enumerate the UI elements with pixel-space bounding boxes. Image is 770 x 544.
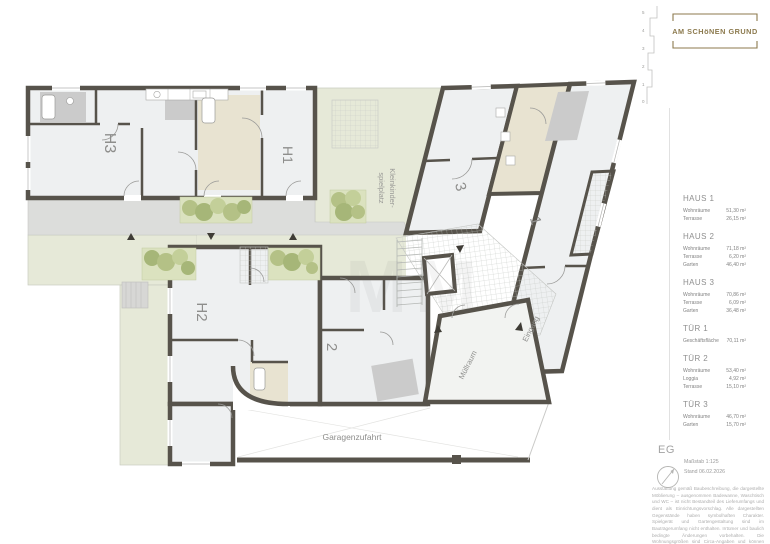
plant-patch: [142, 248, 196, 280]
date-note: Stand 06.02.2026: [684, 469, 725, 475]
legend-row-label: Terrasse: [683, 299, 702, 307]
legend-row: Geschäftsfläche70,11 m²: [683, 337, 746, 345]
legend-row-value: 53,40 m²: [726, 367, 746, 375]
building-left-top: [28, 88, 315, 198]
label-playground-line2: spielplatz: [377, 172, 386, 204]
legend-row-label: Wohnräume: [683, 291, 710, 299]
legend-row-label: Terrasse: [683, 215, 702, 223]
legend: HAUS 1Wohnräume51,30 m²Terrasse26,15 m²H…: [683, 194, 746, 438]
svg-text:0: 0: [642, 99, 645, 104]
legend-row-value: 36,48 m²: [726, 307, 746, 315]
legend-row: Garten15,70 m²: [683, 421, 746, 429]
svg-text:2: 2: [642, 64, 645, 69]
legend-row-label: Wohnräume: [683, 367, 710, 375]
svg-text:4: 4: [642, 28, 645, 33]
legend-block: HAUS 1Wohnräume51,30 m²Terrasse26,15 m²: [683, 194, 746, 223]
north-indicator-icon: [658, 467, 679, 488]
legend-row: Garten36,48 m²: [683, 307, 746, 315]
legend-row: Loggia4,92 m²: [683, 375, 746, 383]
legend-row: Terrasse26,15 m²: [683, 215, 746, 223]
label-garage: Garagenzufahrt: [322, 432, 382, 442]
legend-row-label: Terrasse: [683, 253, 702, 261]
legend-row: Wohnräume51,30 m²: [683, 207, 746, 215]
kitchen-counter: [146, 89, 228, 100]
legend-block-title: HAUS 1: [683, 194, 746, 204]
legend-block: TÜR 3Wohnräume46,70 m²Garten15,70 m²: [683, 400, 746, 429]
legend-row-value: 71,18 m²: [726, 245, 746, 253]
legend-block: TÜR 1Geschäftsfläche70,11 m²: [683, 324, 746, 345]
plant-patch: [268, 248, 320, 280]
floorplan-drawing: MM H3 H1 H2 2 3 1 Kleinkinder- spielplat…: [0, 0, 770, 544]
bathtub: [254, 368, 265, 390]
label-h3: H3: [101, 133, 118, 154]
legend-block: TÜR 2Wohnräume53,40 m²Loggia4,92 m²Terra…: [683, 354, 746, 391]
svg-text:5: 5: [642, 10, 645, 15]
legend-row-value: 15,70 m²: [726, 421, 746, 429]
legend-block: HAUS 2Wohnräume71,18 m²Terrasse6,20 m²Ga…: [683, 232, 746, 269]
label-playground-line1: Kleinkinder-: [388, 168, 397, 208]
legend-block-title: TÜR 1: [683, 324, 746, 334]
disclaimer-text: Ausstattung gemäß Baubeschreibung, die d…: [652, 486, 764, 544]
legend-row-label: Loggia: [683, 375, 698, 383]
legend-row-value: 51,30 m²: [726, 207, 746, 215]
legend-row: Garten46,40 m²: [683, 261, 746, 269]
story-ruler: [647, 6, 657, 104]
legend-row: Terrasse6,20 m²: [683, 253, 746, 261]
label-h1: H1: [280, 146, 296, 164]
legend-row-label: Wohnräume: [683, 245, 710, 253]
legend-block-title: TÜR 3: [683, 400, 746, 410]
legend-block-title: TÜR 2: [683, 354, 746, 364]
legend-row-value: 15,10 m²: [726, 383, 746, 391]
plant-patch: [180, 197, 252, 223]
watermark: MM: [345, 245, 484, 328]
svg-text:1: 1: [642, 82, 645, 87]
legend-row-label: Geschäftsfläche: [683, 337, 719, 345]
legend-row-label: Terrasse: [683, 383, 702, 391]
legend-row-value: 4,92 m²: [729, 375, 746, 383]
story-ruler-numbers: 5 4 3 2 1 0: [642, 10, 645, 104]
legend-block-title: HAUS 2: [683, 232, 746, 242]
svg-text:3: 3: [642, 46, 645, 51]
legend-row-label: Garten: [683, 307, 698, 315]
legend-row-value: 70,86 m²: [726, 291, 746, 299]
legend-row-label: Garten: [683, 421, 698, 429]
legend-row-value: 46,40 m²: [726, 261, 746, 269]
floorplan-sheet: MM H3 H1 H2 2 3 1 Kleinkinder- spielplat…: [0, 0, 770, 544]
legend-row: Wohnräume46,70 m²: [683, 413, 746, 421]
legend-row-value: 26,15 m²: [726, 215, 746, 223]
sink: [67, 98, 74, 105]
legend-row-label: Garten: [683, 261, 698, 269]
level-label: EG: [658, 444, 675, 456]
legend-row-value: 6,09 m²: [729, 299, 746, 307]
label-h2: H2: [193, 302, 210, 321]
plant-patch: [330, 190, 366, 223]
legend-row: Wohnräume70,86 m²: [683, 291, 746, 299]
legend-row: Terrasse6,09 m²: [683, 299, 746, 307]
legend-row: Wohnräume53,40 m²: [683, 367, 746, 375]
logo: AM SCHöNEN GRUND: [669, 27, 761, 36]
legend-row-label: Wohnräume: [683, 413, 710, 421]
bathroom: [371, 359, 419, 402]
legend-row-value: 46,70 m²: [726, 413, 746, 421]
legend-row-value: 70,11 m²: [727, 337, 746, 345]
bathtub: [202, 98, 215, 123]
label-unit2: 2: [323, 343, 340, 351]
legend-row-value: 6,20 m²: [729, 253, 746, 261]
legend-row-label: Wohnräume: [683, 207, 710, 215]
legend-row: Wohnräume71,18 m²: [683, 245, 746, 253]
bathtub: [42, 95, 55, 119]
legend-block: HAUS 3Wohnräume70,86 m²Terrasse6,09 m²Ga…: [683, 278, 746, 315]
legend-block-title: HAUS 3: [683, 278, 746, 288]
legend-row: Terrasse15,10 m²: [683, 383, 746, 391]
scale-note: Maßstab 1:125: [684, 459, 719, 465]
